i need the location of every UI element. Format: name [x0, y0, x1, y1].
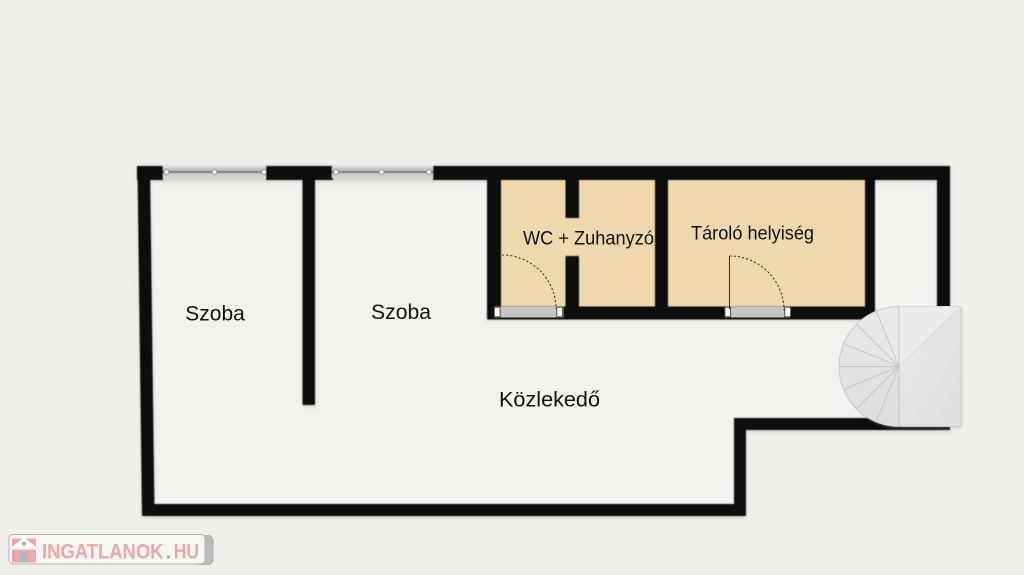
svg-text:Szoba: Szoba: [185, 303, 245, 326]
svg-text:Szoba: Szoba: [371, 301, 431, 324]
svg-text:.: .: [166, 540, 172, 564]
svg-text:Közlekedő: Közlekedő: [499, 389, 600, 412]
svg-text:INGATLANOK: INGATLANOK: [42, 540, 164, 564]
svg-text:HU: HU: [174, 540, 199, 564]
svg-text:WC + Zuhanyzó: WC + Zuhanyzó: [523, 228, 654, 250]
svg-text:Tároló helyiség: Tároló helyiség: [691, 223, 814, 245]
